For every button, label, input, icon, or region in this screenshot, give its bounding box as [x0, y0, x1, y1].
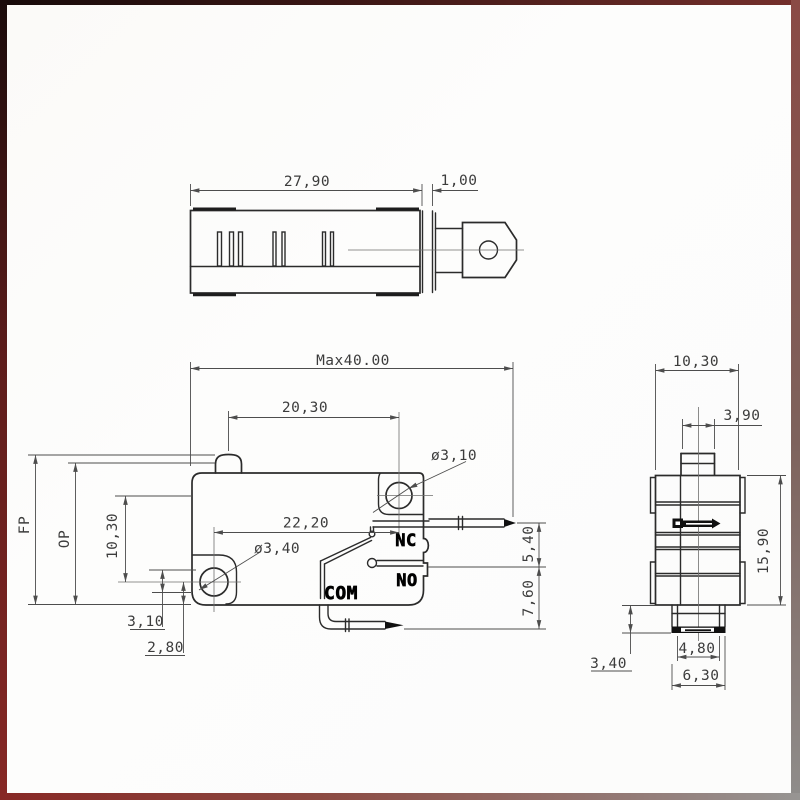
- label-com: COM: [324, 583, 358, 604]
- nc-contact: [369, 531, 375, 537]
- top-view: 27,90 1,00: [191, 173, 525, 295]
- dim-hole-top-diameter: ø3,10: [431, 448, 477, 464]
- nc-terminal: [369, 517, 516, 537]
- dim-operating-position: OP: [57, 530, 73, 548]
- drawing-sheet: 27,90 1,00: [0, 0, 800, 800]
- top-view-body: [191, 211, 421, 294]
- dim-5-40: 5,40: [521, 526, 537, 563]
- side-view-body: [656, 476, 741, 606]
- side-plunger: [681, 454, 715, 476]
- dim-3-10: 3,10: [127, 614, 164, 630]
- dim-top-length: 27,90: [284, 174, 330, 190]
- terminal-slot-end: [673, 519, 721, 529]
- dim-2-80: 2,80: [147, 640, 184, 656]
- microswitch-3view-drawing: 27,90 1,00: [0, 0, 800, 800]
- label-nc: NC: [395, 531, 416, 551]
- com-terminal: [320, 605, 404, 632]
- dim-plunger-width: 3,90: [724, 408, 761, 424]
- no-contact: [368, 559, 424, 568]
- dim-side-height: 15,90: [756, 528, 772, 574]
- dim-base-inner-width: 4,80: [679, 641, 716, 657]
- front-view: NC NO COM Max40.00 20,30 22,20 ø3,10 ø3,…: [17, 353, 546, 656]
- dim-base-height: 3,40: [590, 656, 627, 672]
- dim-plunger-to-hole: 20,30: [282, 400, 328, 416]
- terminal-slots: [218, 232, 334, 266]
- dim-7-60: 7,60: [521, 580, 537, 617]
- side-view: 10,30 3,90 15,90 3,40 4,80 6,30: [590, 354, 786, 690]
- dim-overall-max: Max40.00: [316, 353, 390, 369]
- dim-hole-bottom-diameter: ø3,40: [254, 541, 300, 557]
- dim-top-tip-offset: 1,00: [441, 173, 478, 189]
- dim-base-outer-width: 6,30: [683, 668, 720, 684]
- dim-holes-horizontal: 22,20: [283, 516, 329, 532]
- label-no: NO: [396, 571, 417, 591]
- plunger-button: [216, 455, 242, 474]
- dim-side-width: 10,30: [673, 354, 719, 370]
- dim-holes-vertical: 10,30: [105, 513, 121, 559]
- dim-free-position: FP: [17, 516, 33, 534]
